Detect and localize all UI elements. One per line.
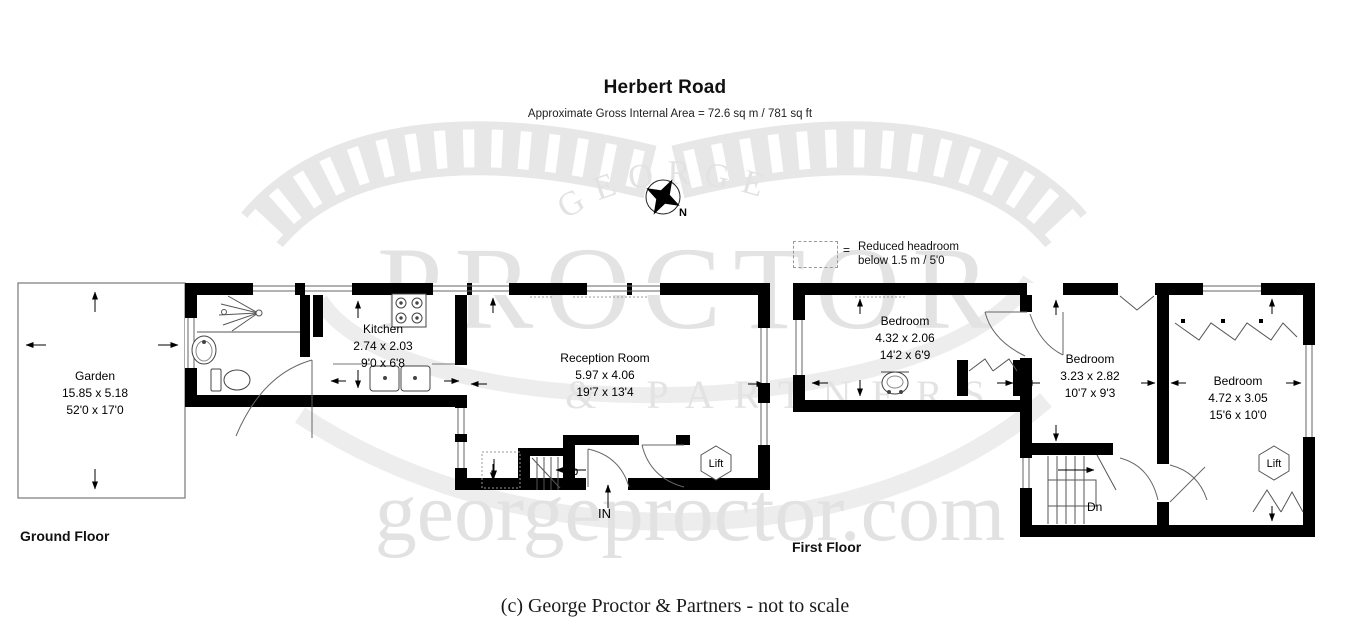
garden-label: Garden 15.85 x 5.18 52'0 x 17'0: [30, 368, 160, 419]
room-name: Bedroom: [835, 313, 975, 330]
ground-floor-label: Ground Floor: [20, 528, 109, 544]
page-title: Herbert Road: [375, 77, 955, 99]
page-subtitle: Approximate Gross Internal Area = 72.6 s…: [375, 108, 965, 120]
stairs-up-label: Up: [563, 464, 578, 478]
copyright-footer: (c) George Proctor & Partners - not to s…: [375, 595, 975, 618]
room-metric: 4.72 x 3.05: [1168, 390, 1308, 407]
reduced-headroom-legend-text: Reduced headroom below 1.5 m / 5'0: [858, 240, 959, 268]
room-metric: 15.85 x 5.18: [30, 385, 160, 402]
lift-label-first: Lift: [1267, 458, 1282, 470]
room-name: Garden: [30, 368, 160, 385]
room-imperial: 15'6 x 10'0: [1168, 407, 1308, 424]
lift-label-ground: Lift: [709, 458, 724, 470]
room-metric: 4.32 x 2.06: [835, 330, 975, 347]
legend-line2: below 1.5 m / 5'0: [858, 254, 959, 268]
wardrobe-icon: [1175, 319, 1297, 340]
ground-floor-windows: [185, 283, 770, 490]
reduced-headroom-legend-swatch: [793, 241, 838, 268]
first-floor-label: First Floor: [792, 539, 861, 555]
kitchen-label: Kitchen 2.74 x 2.03 9'0 x 6'8: [327, 321, 439, 372]
bedroom2-label: Bedroom 3.23 x 2.82 10'7 x 9'3: [1025, 351, 1155, 402]
shower-icon: [197, 296, 300, 332]
room-metric: 5.97 x 4.06: [530, 367, 680, 384]
stairs-dn-label: Dn: [1087, 500, 1102, 514]
room-imperial: 52'0 x 17'0: [30, 402, 160, 419]
room-name: Bedroom: [1168, 373, 1308, 390]
room-name: Reception Room: [530, 350, 680, 367]
room-name: Kitchen: [327, 321, 439, 338]
room-imperial: 19'7 x 13'4: [530, 384, 680, 401]
first-stairs-icon: [1048, 455, 1116, 524]
room-metric: 2.74 x 2.03: [327, 338, 439, 355]
room-metric: 3.23 x 2.82: [1025, 368, 1155, 385]
legend-equals: =: [843, 243, 850, 257]
entrance-in-label: IN: [598, 506, 611, 521]
bedroom1-label: Bedroom 4.32 x 2.06 14'2 x 6'9: [835, 313, 975, 364]
bathroom-sink-icon: [192, 336, 216, 364]
room-imperial: 9'0 x 6'8: [327, 355, 439, 372]
reception-room-label: Reception Room 5.97 x 4.06 19'7 x 13'4: [530, 350, 680, 401]
toilet-icon: [211, 369, 250, 391]
bedroom-sink-icon: [881, 372, 909, 394]
bedroom3-label: Bedroom 4.72 x 3.05 15'6 x 10'0: [1168, 373, 1308, 424]
room-name: Bedroom: [1025, 351, 1155, 368]
floorplan-page: GEORGE PROCTOR & PARTNERS georgeproctor.…: [0, 0, 1350, 632]
room-imperial: 14'2 x 6'9: [835, 347, 975, 364]
compass-north-label: N: [679, 207, 687, 219]
legend-line1: Reduced headroom: [858, 240, 959, 254]
room-imperial: 10'7 x 9'3: [1025, 385, 1155, 402]
ground-floor-walls: [185, 283, 770, 490]
